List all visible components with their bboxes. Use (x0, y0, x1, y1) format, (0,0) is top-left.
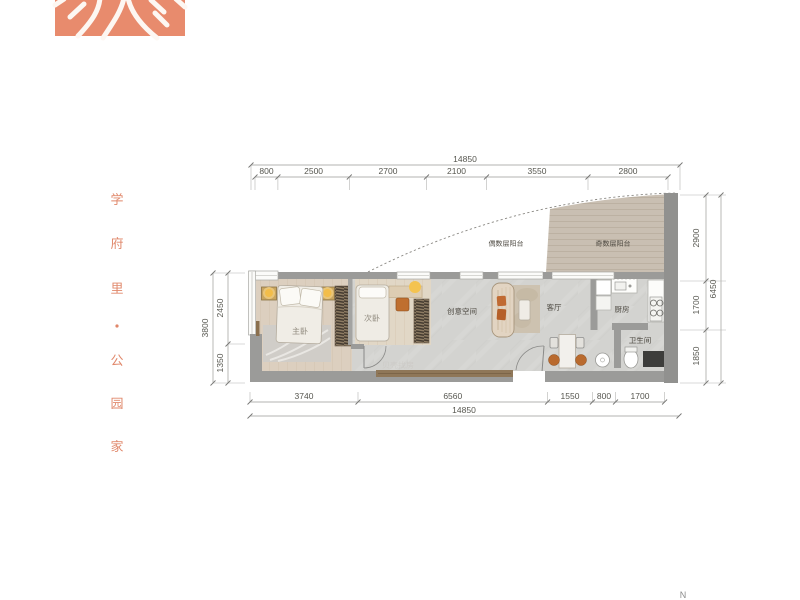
svg-text:6560: 6560 (443, 391, 462, 401)
svg-text:2800: 2800 (619, 166, 638, 176)
svg-text:6450: 6450 (708, 279, 718, 298)
svg-text:2100: 2100 (447, 166, 466, 176)
svg-text:3800: 3800 (200, 318, 210, 337)
svg-text:14850: 14850 (453, 154, 477, 164)
svg-text:2900: 2900 (691, 228, 701, 247)
svg-text:1700: 1700 (691, 295, 701, 314)
svg-text:800: 800 (597, 391, 611, 401)
svg-text:1550: 1550 (561, 391, 580, 401)
svg-text:1850: 1850 (691, 346, 701, 365)
svg-text:N: N (680, 590, 687, 600)
svg-text:14850: 14850 (452, 405, 476, 415)
svg-text:2450: 2450 (215, 298, 225, 317)
svg-text:2500: 2500 (304, 166, 323, 176)
svg-text:3550: 3550 (528, 166, 547, 176)
svg-text:1350: 1350 (215, 353, 225, 372)
svg-text:800: 800 (259, 166, 273, 176)
svg-text:2700: 2700 (379, 166, 398, 176)
svg-text:1700: 1700 (631, 391, 650, 401)
svg-text:3740: 3740 (295, 391, 314, 401)
